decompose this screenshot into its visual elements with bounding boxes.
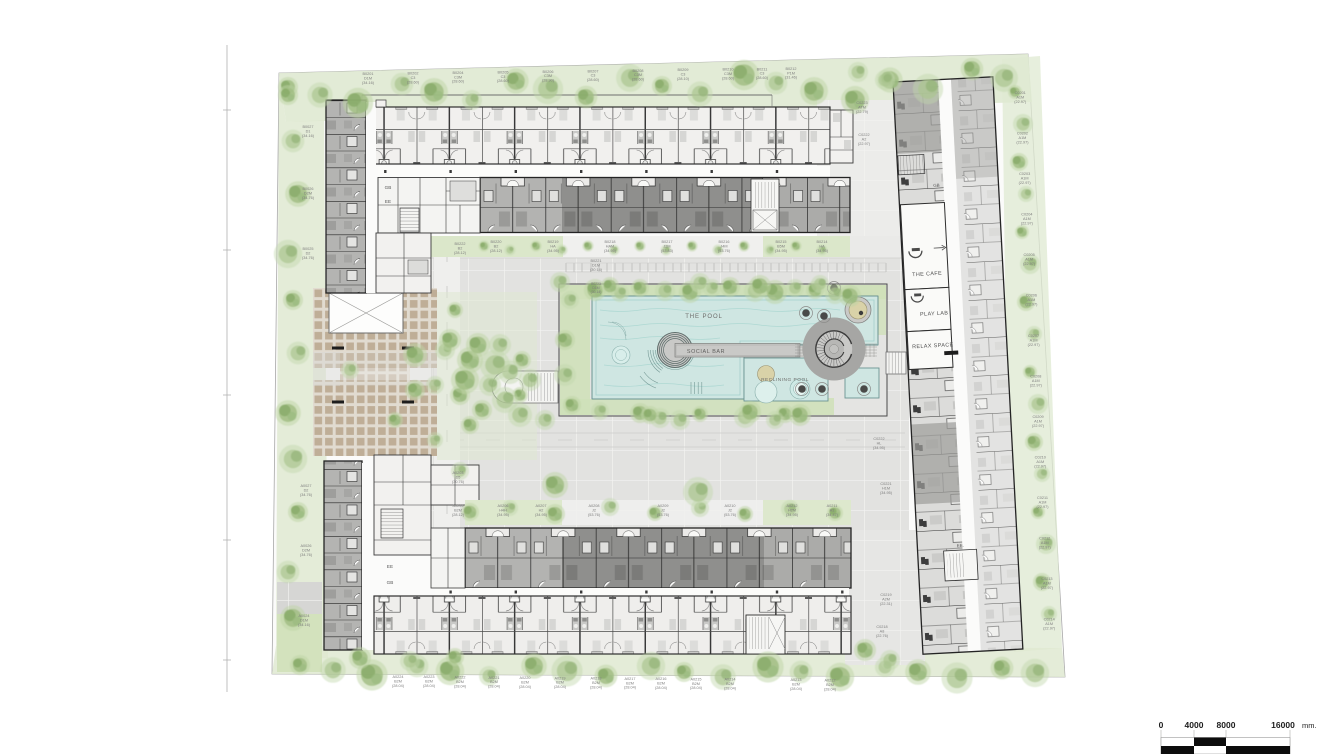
- svg-text:C0222: C0222: [873, 437, 884, 441]
- svg-text:(53.76): (53.76): [724, 513, 737, 517]
- svg-text:A0208: A0208: [589, 504, 600, 508]
- svg-text:GB: GB: [387, 580, 394, 585]
- svg-text:D1M: D1M: [592, 263, 600, 267]
- svg-text:J2: J2: [661, 508, 665, 512]
- svg-text:D2: D2: [304, 488, 309, 492]
- svg-text:A0210: A0210: [725, 504, 736, 508]
- svg-text:A0206: A0206: [498, 504, 509, 508]
- svg-text:C0211: C0211: [1037, 496, 1048, 500]
- svg-text:(34.76): (34.76): [302, 256, 315, 260]
- svg-text:J2: J2: [592, 508, 596, 512]
- svg-text:(30.14): (30.14): [591, 290, 602, 294]
- svg-text:A0203: A0203: [453, 471, 464, 475]
- svg-text:B0216: B0216: [719, 240, 730, 244]
- svg-text:(28.04): (28.04): [724, 687, 737, 691]
- svg-text:(22.97): (22.97): [1039, 545, 1052, 549]
- svg-text:C0202: C0202: [1017, 132, 1028, 136]
- svg-text:B0218: B0218: [605, 240, 616, 244]
- svg-text:(34.95): (34.95): [873, 446, 886, 450]
- svg-text:D1M: D1M: [300, 618, 308, 622]
- svg-text:B2M: B2M: [454, 508, 462, 512]
- svg-text:C3M: C3M: [544, 74, 552, 78]
- svg-text:J4M: J4M: [720, 244, 727, 248]
- svg-text:B0219: B0219: [548, 240, 559, 244]
- svg-text:B2M: B2M: [456, 680, 464, 684]
- svg-text:C0208: C0208: [1030, 375, 1041, 379]
- svg-text:A0216: A0216: [656, 677, 667, 681]
- svg-text:4000: 4000: [1185, 720, 1204, 730]
- svg-text:GB: GB: [385, 185, 392, 190]
- svg-text:C3M: C3M: [724, 72, 732, 76]
- svg-text:B0027: B0027: [303, 125, 314, 129]
- svg-text:A0213: A0213: [791, 678, 802, 682]
- svg-text:C0201: C0201: [1015, 91, 1026, 95]
- svg-text:HA: HA: [550, 244, 556, 248]
- svg-text:B0210: B0210: [723, 68, 734, 72]
- svg-text:A0205: A0205: [453, 504, 464, 508]
- svg-text:B0025: B0025: [303, 247, 314, 251]
- svg-text:H2M: H2M: [788, 508, 796, 512]
- svg-text:(22.97): (22.97): [858, 142, 871, 146]
- svg-text:A0212: A0212: [825, 678, 836, 682]
- svg-text:A0219: A0219: [555, 676, 566, 680]
- svg-text:D1M: D1M: [364, 76, 372, 80]
- svg-text:A0217: A0217: [625, 677, 636, 681]
- svg-text:H4H: H4H: [499, 508, 507, 512]
- svg-text:C3: C3: [501, 75, 506, 79]
- svg-text:A1M: A1M: [1043, 581, 1051, 585]
- svg-text:(22.97): (22.97): [1016, 140, 1029, 144]
- svg-text:SOCIAL BAR: SOCIAL BAR: [687, 349, 725, 355]
- svg-text:(34.76): (34.76): [302, 196, 315, 200]
- svg-text:(28.04): (28.04): [790, 687, 803, 691]
- svg-text:C0206: C0206: [1026, 294, 1037, 298]
- svg-text:(28.12): (28.12): [454, 251, 467, 255]
- svg-text:EE: EE: [385, 199, 391, 204]
- svg-text:A1M: A1M: [1025, 257, 1033, 261]
- svg-text:(34.95): (34.95): [604, 249, 617, 253]
- svg-text:B0202: B0202: [408, 71, 419, 75]
- svg-text:(53.76): (53.76): [588, 513, 601, 517]
- svg-text:(28.04): (28.04): [655, 686, 668, 690]
- svg-text:D2M: D2M: [302, 548, 310, 552]
- svg-text:B0214: B0214: [817, 240, 828, 244]
- svg-text:B0201: B0201: [363, 72, 374, 76]
- svg-text:D2M: D2M: [304, 191, 312, 195]
- svg-text:C0207: C0207: [1028, 334, 1039, 338]
- svg-text:B2: B2: [458, 246, 463, 250]
- svg-text:(34.76): (34.76): [300, 493, 313, 497]
- svg-text:A1M: A1M: [1032, 379, 1040, 383]
- svg-text:HA: HA: [819, 244, 825, 248]
- svg-text:(28.60): (28.60): [497, 79, 510, 83]
- svg-text:A1M: A1M: [1023, 217, 1031, 221]
- svg-text:(28.60): (28.60): [722, 77, 735, 81]
- svg-text:C3M: C3M: [634, 73, 642, 77]
- svg-text:B0217: B0217: [662, 240, 673, 244]
- svg-text:C0218: C0218: [876, 625, 887, 629]
- svg-text:C0205: C0205: [1024, 253, 1035, 257]
- svg-text:C0203: C0203: [1019, 172, 1030, 176]
- svg-text:B2M: B2M: [425, 680, 433, 684]
- svg-text:(34.47): (34.47): [826, 513, 839, 517]
- svg-text:(22.31): (22.31): [880, 602, 893, 606]
- svg-text:A1M: A1M: [1027, 298, 1035, 302]
- svg-text:A0212: A0212: [787, 504, 798, 508]
- svg-text:B0208: B0208: [633, 69, 644, 73]
- svg-text:C3: C3: [760, 72, 765, 76]
- svg-text:(22.97): (22.97): [1023, 262, 1036, 266]
- svg-text:C3: C3: [411, 76, 416, 80]
- svg-text:A0224: A0224: [393, 675, 404, 679]
- svg-text:GB: GB: [933, 183, 940, 188]
- svg-text:(22.97): (22.97): [1034, 464, 1047, 468]
- svg-text:C0204: C0204: [1021, 213, 1032, 217]
- svg-text:(28.60): (28.60): [587, 78, 600, 82]
- svg-text:(34.95): (34.95): [786, 513, 799, 517]
- svg-text:(34.76): (34.76): [300, 553, 313, 557]
- svg-text:D2: D2: [306, 251, 311, 255]
- svg-text:A0218: A0218: [591, 677, 602, 681]
- svg-text:(31.46): (31.46): [785, 76, 798, 80]
- svg-text:C3: C3: [681, 73, 686, 77]
- svg-text:(28.04): (28.04): [824, 687, 837, 691]
- svg-text:(28.04): (28.04): [554, 685, 567, 689]
- svg-text:B2M: B2M: [657, 682, 665, 686]
- svg-text:A0024: A0024: [299, 614, 310, 618]
- svg-text:(28.90): (28.90): [542, 79, 555, 83]
- svg-text:A1M: A1M: [1041, 541, 1049, 545]
- svg-text:(22.97): (22.97): [1021, 221, 1034, 225]
- svg-text:A0222: A0222: [455, 675, 466, 679]
- svg-text:(53.83): (53.83): [661, 249, 674, 253]
- svg-text:C0213: C0213: [1041, 577, 1052, 581]
- svg-text:B2M: B2M: [626, 681, 634, 685]
- svg-text:B0221: B0221: [591, 259, 602, 263]
- svg-text:A0211: A0211: [827, 504, 838, 508]
- svg-text:A0221: A0221: [489, 676, 500, 680]
- svg-text:A0214: A0214: [725, 678, 736, 682]
- svg-text:(34.16): (34.16): [298, 623, 311, 627]
- svg-text:ATM: ATM: [858, 105, 866, 109]
- svg-text:B2M: B2M: [726, 682, 734, 686]
- svg-text:(28.04): (28.04): [624, 686, 637, 690]
- svg-text:(22.97): (22.97): [1019, 181, 1032, 185]
- svg-text:(34.95): (34.95): [816, 249, 829, 253]
- svg-text:C0209: C0209: [1032, 415, 1043, 419]
- svg-text:B2M: B2M: [490, 680, 498, 684]
- svg-text:B2M: B2M: [521, 680, 529, 684]
- svg-text:(34.16): (34.16): [302, 134, 315, 138]
- svg-text:A0209: A0209: [658, 504, 669, 508]
- svg-text:A1M: A1M: [1039, 500, 1047, 504]
- svg-text:A0027: A0027: [301, 484, 312, 488]
- svg-text:A0207: A0207: [536, 504, 547, 508]
- svg-text:16000: 16000: [1271, 720, 1295, 730]
- svg-text:D5: D5: [456, 475, 461, 479]
- svg-text:(22.79): (22.79): [856, 110, 869, 114]
- svg-text:C0222: C0222: [858, 133, 869, 137]
- svg-text:B2M: B2M: [826, 683, 834, 687]
- svg-text:C0210: C0210: [1035, 456, 1046, 460]
- svg-text:8000: 8000: [1217, 720, 1236, 730]
- svg-text:B2M: B2M: [592, 681, 600, 685]
- svg-text:(22.97): (22.97): [1030, 383, 1043, 387]
- svg-text:C0219: C0219: [880, 593, 891, 597]
- svg-text:(28.60): (28.60): [407, 80, 420, 84]
- svg-text:HAM: HAM: [606, 244, 614, 248]
- svg-text:(22.97): (22.97): [1032, 424, 1045, 428]
- svg-text:H2: H2: [539, 508, 544, 512]
- svg-text:(28.04): (28.04): [590, 685, 603, 689]
- svg-text:C0212: C0212: [1039, 537, 1050, 541]
- svg-text:B0222: B0222: [455, 242, 466, 246]
- svg-text:(34.95): (34.95): [535, 513, 548, 517]
- svg-text:D1: D1: [306, 129, 311, 133]
- svg-text:0: 0: [1159, 720, 1164, 730]
- svg-text:B0215: B0215: [776, 240, 787, 244]
- svg-text:(28.12): (28.12): [452, 513, 465, 517]
- svg-text:(28.60): (28.60): [452, 80, 465, 84]
- svg-text:HL: HL: [877, 441, 882, 445]
- svg-text:(28.04): (28.04): [488, 685, 501, 689]
- svg-text:B0205: B0205: [498, 70, 509, 74]
- svg-text:J2M: J2M: [663, 244, 670, 248]
- svg-text:B0207: B0207: [588, 69, 599, 73]
- svg-text:(34.95): (34.95): [547, 249, 560, 253]
- svg-text:EE.: EE.: [957, 543, 964, 548]
- svg-text:A2: A2: [862, 137, 867, 141]
- svg-text:C0223: C0223: [856, 101, 867, 105]
- svg-text:B2M: B2M: [394, 679, 402, 683]
- svg-text:(34.95): (34.95): [880, 491, 893, 495]
- svg-text:(28.60): (28.60): [756, 76, 769, 80]
- svg-text:A8: A8: [880, 629, 885, 633]
- svg-text:C3: C3: [591, 74, 596, 78]
- svg-text:(22.97): (22.97): [1014, 100, 1027, 104]
- svg-text:B2M: B2M: [556, 681, 564, 685]
- svg-text:A1M: A1M: [1034, 419, 1042, 423]
- svg-text:(28.04): (28.04): [519, 685, 532, 689]
- svg-text:(28.04): (28.04): [690, 686, 703, 690]
- svg-text:A1M: A1M: [1019, 136, 1027, 140]
- svg-text:(34.16): (34.16): [362, 81, 375, 85]
- svg-text:(53.76): (53.76): [718, 249, 731, 253]
- svg-text:(53.76): (53.76): [657, 513, 670, 517]
- svg-text:B2: B2: [494, 244, 499, 248]
- svg-text:J2: J2: [728, 508, 732, 512]
- svg-text:H1M: H1M: [882, 486, 890, 490]
- svg-text:C0221: C0221: [880, 482, 891, 486]
- svg-text:A0026: A0026: [301, 544, 312, 548]
- svg-text:A1M: A1M: [1036, 460, 1044, 464]
- svg-text:B0220: B0220: [491, 240, 502, 244]
- svg-text:mm.: mm.: [1302, 721, 1317, 730]
- svg-text:A2M: A2M: [882, 597, 890, 601]
- svg-text:THE POOL: THE POOL: [685, 314, 723, 320]
- svg-text:(22.76): (22.76): [876, 634, 889, 638]
- svg-text:(22.97): (22.97): [1043, 626, 1056, 630]
- svg-text:(28.04): (28.04): [454, 684, 467, 688]
- svg-text:(22.97): (22.97): [1025, 302, 1038, 306]
- svg-text:(28.04): (28.04): [423, 684, 436, 688]
- svg-text:A0215: A0215: [691, 677, 702, 681]
- svg-text:(28.60): (28.60): [632, 78, 645, 82]
- svg-text:(28.12): (28.12): [490, 249, 503, 253]
- svg-text:C0214: C0214: [1044, 618, 1055, 622]
- svg-text:H1: H1: [830, 508, 835, 512]
- svg-text:P1M: P1M: [787, 71, 795, 75]
- svg-text:RECLINING POOL: RECLINING POOL: [761, 377, 809, 383]
- svg-text:(28.10): (28.10): [677, 77, 690, 81]
- svg-text:(30.76): (30.76): [452, 480, 465, 484]
- svg-text:B2M: B2M: [792, 683, 800, 687]
- svg-text:(34.95): (34.95): [775, 249, 788, 253]
- svg-text:B5M: B5M: [777, 244, 785, 248]
- svg-text:EE: EE: [387, 564, 393, 569]
- svg-text:A1M: A1M: [1016, 95, 1024, 99]
- svg-text:(34.95): (34.95): [497, 513, 510, 517]
- svg-text:B0211: B0211: [757, 67, 768, 71]
- svg-text:(22.97): (22.97): [1041, 586, 1054, 590]
- svg-text:C3M: C3M: [454, 75, 462, 79]
- svg-text:B0026: B0026: [303, 187, 314, 191]
- svg-text:A1M: A1M: [1045, 622, 1053, 626]
- svg-text:(30.14): (30.14): [590, 268, 603, 272]
- svg-text:A1M: A1M: [1021, 176, 1029, 180]
- svg-text:(28.04): (28.04): [392, 684, 405, 688]
- svg-text:(22.97): (22.97): [1028, 343, 1041, 347]
- svg-text:A1M: A1M: [1030, 338, 1038, 342]
- svg-text:B2M: B2M: [692, 682, 700, 686]
- svg-text:(22.97): (22.97): [1036, 505, 1049, 509]
